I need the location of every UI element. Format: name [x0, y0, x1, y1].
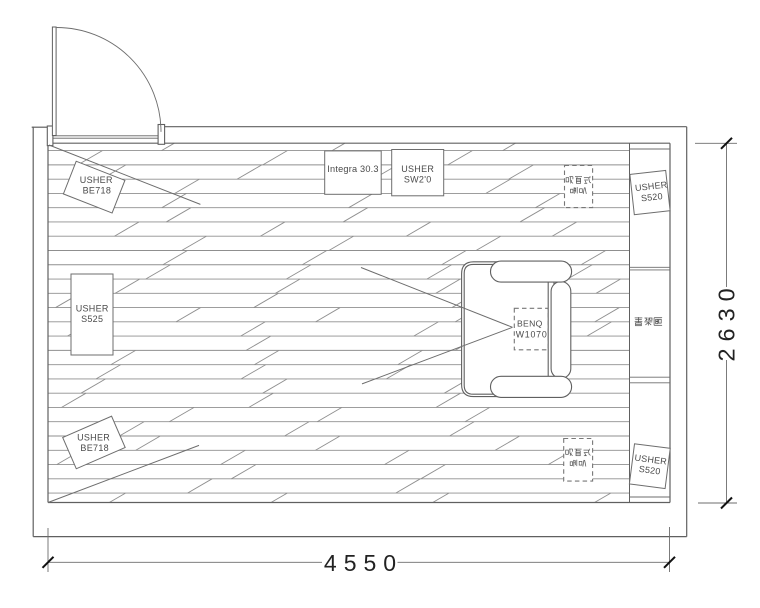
svg-text:SW2'0: SW2'0 [404, 174, 432, 184]
svg-text:BE718: BE718 [80, 443, 109, 453]
svg-text:USHER: USHER [401, 164, 434, 174]
svg-text:2630: 2630 [714, 281, 740, 361]
svg-text:S525: S525 [81, 314, 103, 324]
svg-text:W1070: W1070 [516, 330, 548, 340]
svg-text:BE718: BE718 [83, 185, 112, 195]
svg-text:BENQ: BENQ [517, 318, 543, 328]
svg-text:Integra 30.3: Integra 30.3 [327, 164, 378, 174]
svg-text:USHER: USHER [80, 175, 113, 185]
svg-text:4550: 4550 [324, 550, 403, 576]
svg-text:USHER: USHER [77, 433, 110, 443]
svg-text:USHER: USHER [76, 303, 109, 313]
